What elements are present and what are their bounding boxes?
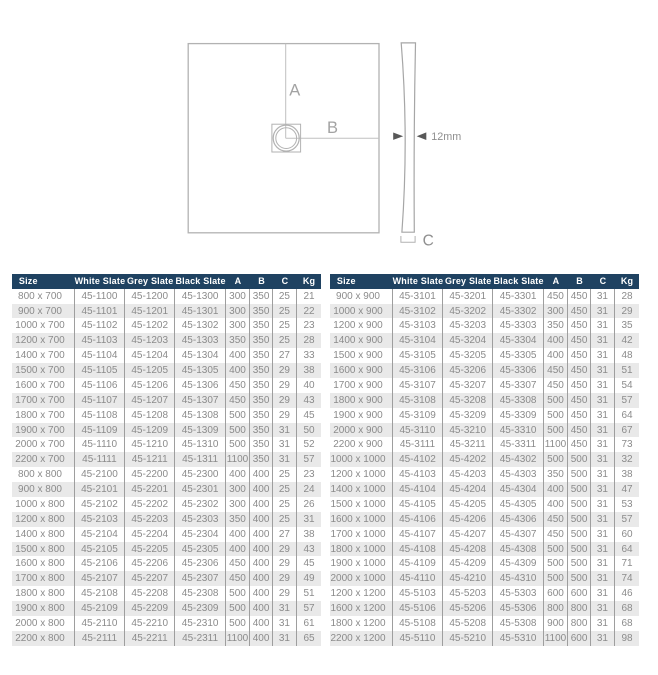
svg-text:12mm: 12mm [431,131,461,143]
svg-text:A: A [289,82,300,100]
svg-text:B: B [327,119,338,137]
svg-text:C: C [423,232,434,249]
